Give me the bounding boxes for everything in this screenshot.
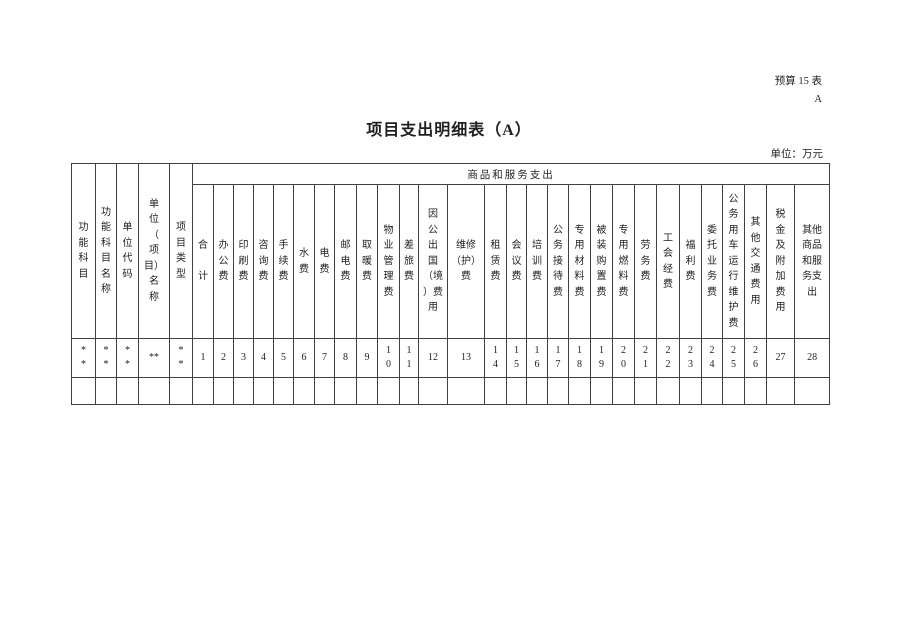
column-header: 会 议 费 bbox=[507, 185, 527, 339]
empty-cell bbox=[569, 378, 591, 405]
group-header: 商品和服务支出 bbox=[193, 164, 830, 185]
column-header: 租 赁 费 bbox=[485, 185, 507, 339]
column-number-cell: 1 9 bbox=[591, 339, 613, 378]
data-cell: * * bbox=[72, 339, 96, 378]
column-header: 单 位 代 码 bbox=[117, 164, 139, 339]
data-cell: * * bbox=[117, 339, 139, 378]
column-header: 水 费 bbox=[294, 185, 315, 339]
empty-cell bbox=[254, 378, 274, 405]
column-header: 专 用 材 料 费 bbox=[569, 185, 591, 339]
column-number-cell: 3 bbox=[234, 339, 254, 378]
column-header: 电 费 bbox=[315, 185, 335, 339]
column-number-cell: 1 bbox=[193, 339, 214, 378]
empty-cell bbox=[680, 378, 702, 405]
column-header: 单 位 （ 项 目） 名 称 bbox=[139, 164, 170, 339]
column-number-cell: 4 bbox=[254, 339, 274, 378]
empty-cell bbox=[657, 378, 680, 405]
document-page: 预算 15 表 A 项目支出明细表（A） 单位：万元 功 能 科 目功 能 科 … bbox=[0, 0, 898, 635]
column-number-cell: 2 6 bbox=[745, 339, 767, 378]
column-header: 税 金 及 附 加 费 用 bbox=[767, 185, 795, 339]
column-number-cell: 2 5 bbox=[723, 339, 745, 378]
empty-cell bbox=[357, 378, 378, 405]
column-number-cell: 1 5 bbox=[507, 339, 527, 378]
column-header: 其他 商品 和服 务支 出 bbox=[795, 185, 830, 339]
column-header: 物 业 管 理 费 bbox=[378, 185, 400, 339]
column-header: 专 用 燃 料 费 bbox=[613, 185, 635, 339]
column-header: 被 装 购 置 费 bbox=[591, 185, 613, 339]
column-header: 咨 询 费 bbox=[254, 185, 274, 339]
column-number-cell: 2 2 bbox=[657, 339, 680, 378]
column-header: 取 暖 费 bbox=[357, 185, 378, 339]
column-number-cell: 1 4 bbox=[485, 339, 507, 378]
column-number-cell: 1 6 bbox=[527, 339, 548, 378]
column-number-cell: 1 7 bbox=[548, 339, 569, 378]
column-header: 邮 电 费 bbox=[335, 185, 357, 339]
empty-cell bbox=[635, 378, 657, 405]
empty-cell bbox=[745, 378, 767, 405]
empty-cell bbox=[419, 378, 448, 405]
column-number-cell: 2 4 bbox=[702, 339, 723, 378]
column-header: 手 续 费 bbox=[274, 185, 294, 339]
empty-cell bbox=[294, 378, 315, 405]
column-header: 差 旅 费 bbox=[400, 185, 419, 339]
empty-cell bbox=[527, 378, 548, 405]
column-number-cell: 1 8 bbox=[569, 339, 591, 378]
empty-cell bbox=[72, 378, 96, 405]
column-header: 功 能 科 目 名 称 bbox=[96, 164, 117, 339]
empty-cell bbox=[96, 378, 117, 405]
form-code: 预算 15 表 A bbox=[775, 73, 822, 109]
empty-cell bbox=[591, 378, 613, 405]
empty-cell bbox=[795, 378, 830, 405]
column-number-cell: 28 bbox=[795, 339, 830, 378]
empty-cell bbox=[548, 378, 569, 405]
page-title: 项目支出明细表（A） bbox=[0, 116, 898, 140]
column-header: 其 他 交 通 费 用 bbox=[745, 185, 767, 339]
column-header: 办 公 费 bbox=[214, 185, 234, 339]
column-number-cell: 1 0 bbox=[378, 339, 400, 378]
column-header: 合 计 bbox=[193, 185, 214, 339]
empty-cell bbox=[613, 378, 635, 405]
empty-cell bbox=[193, 378, 214, 405]
empty-cell bbox=[767, 378, 795, 405]
column-number-cell: 6 bbox=[294, 339, 315, 378]
empty-cell bbox=[234, 378, 254, 405]
column-header: 功 能 科 目 bbox=[72, 164, 96, 339]
column-number-cell: 7 bbox=[315, 339, 335, 378]
empty-cell bbox=[214, 378, 234, 405]
column-number-cell: 2 1 bbox=[635, 339, 657, 378]
data-cell: * * bbox=[170, 339, 193, 378]
data-cell: ** bbox=[139, 339, 170, 378]
empty-cell bbox=[274, 378, 294, 405]
empty-cell bbox=[378, 378, 400, 405]
empty-cell bbox=[448, 378, 485, 405]
column-number-cell: 13 bbox=[448, 339, 485, 378]
empty-cell bbox=[485, 378, 507, 405]
column-number-cell: 12 bbox=[419, 339, 448, 378]
data-cell: * * bbox=[96, 339, 117, 378]
empty-cell bbox=[507, 378, 527, 405]
empty-cell bbox=[723, 378, 745, 405]
empty-cell bbox=[335, 378, 357, 405]
column-header: 委 托 业 务 费 bbox=[702, 185, 723, 339]
column-header: 印 刷 费 bbox=[234, 185, 254, 339]
empty-cell bbox=[315, 378, 335, 405]
column-header: 工 会 经 费 bbox=[657, 185, 680, 339]
column-header: 福 利 费 bbox=[680, 185, 702, 339]
project-expenditure-table: 功 能 科 目功 能 科 目 名 称单 位 代 码单 位 （ 项 目） 名 称项… bbox=[71, 163, 830, 405]
column-number-cell: 27 bbox=[767, 339, 795, 378]
form-code-line1: 预算 15 表 bbox=[775, 73, 822, 91]
column-header: 培 训 费 bbox=[527, 185, 548, 339]
column-number-cell: 2 0 bbox=[613, 339, 635, 378]
column-number-cell: 2 bbox=[214, 339, 234, 378]
column-header: 项 目 类 型 bbox=[170, 164, 193, 339]
column-header: 公 务 接 待 费 bbox=[548, 185, 569, 339]
column-header: 劳 务 费 bbox=[635, 185, 657, 339]
column-number-cell: 2 3 bbox=[680, 339, 702, 378]
empty-cell bbox=[117, 378, 139, 405]
column-number-cell: 1 1 bbox=[400, 339, 419, 378]
empty-cell bbox=[702, 378, 723, 405]
unit-label: 单位：万元 bbox=[771, 146, 824, 161]
column-number-cell: 5 bbox=[274, 339, 294, 378]
form-code-line2: A bbox=[775, 91, 822, 109]
column-header: 公 务 用 车 运 行 维 护 费 bbox=[723, 185, 745, 339]
column-number-cell: 8 bbox=[335, 339, 357, 378]
empty-cell bbox=[400, 378, 419, 405]
column-header: 因 公 出 国 （境 ）费 用 bbox=[419, 185, 448, 339]
column-header: 维修 （护） 费 bbox=[448, 185, 485, 339]
column-number-cell: 9 bbox=[357, 339, 378, 378]
empty-cell bbox=[170, 378, 193, 405]
empty-cell bbox=[139, 378, 170, 405]
